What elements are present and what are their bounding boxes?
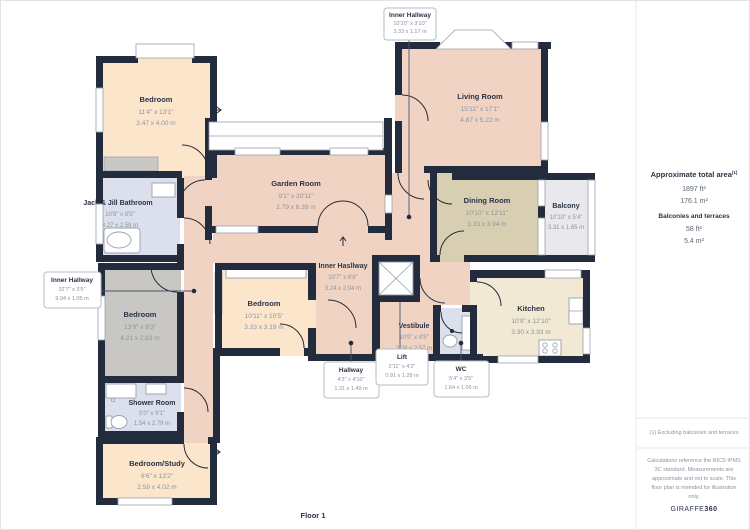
label-bedroom-center: Bedroom 10'11" x 10'5" 3.33 x 3.19 m xyxy=(244,299,284,331)
balcony-railing xyxy=(588,180,595,255)
svg-text:9'1" x 20'11": 9'1" x 20'11" xyxy=(278,193,314,200)
floor-plan: Bedroom 11'4" x 13'1" 3.47 x 4.00 m Jack… xyxy=(0,0,750,530)
label-box-lift: Lift 2'11" x 4'2" 0.91 x 1.28 m xyxy=(376,349,428,385)
svg-text:1.54 x 2.79 m: 1.54 x 2.79 m xyxy=(134,421,170,427)
label-box-inner-hallway-left: Inner Hallway 32'7" x 3'5" 9.94 x 1.05 m xyxy=(44,272,101,308)
svg-text:3.30 x 3.93 m: 3.30 x 3.93 m xyxy=(511,329,550,336)
window xyxy=(96,204,103,244)
vanity-icon xyxy=(152,183,175,197)
window xyxy=(545,270,581,278)
svg-text:5'0" x 9'1": 5'0" x 9'1" xyxy=(139,411,165,417)
svg-text:Inner Hasllway: Inner Hasllway xyxy=(318,263,367,270)
svg-text:10'11" x 10'5": 10'11" x 10'5" xyxy=(245,313,284,320)
floor-label: Floor 1 xyxy=(300,511,325,520)
svg-text:10'10" x 12'11": 10'10" x 12'11" xyxy=(466,210,509,217)
shower-tray-icon xyxy=(106,384,136,398)
svg-text:10'9" x 8'5": 10'9" x 8'5" xyxy=(399,335,429,341)
window xyxy=(235,148,280,155)
living-bay-window xyxy=(436,30,511,49)
svg-text:3.24 x 2.04 m: 3.24 x 2.04 m xyxy=(325,286,361,292)
svg-text:3.33 x 3.94 m: 3.33 x 3.94 m xyxy=(467,221,506,228)
window xyxy=(330,148,368,155)
window xyxy=(512,42,538,49)
label-dining-room: Dining Room 10'10" x 12'11" 3.33 x 3.94 … xyxy=(464,196,511,228)
svg-text:0.91 x 1.28 m: 0.91 x 1.28 m xyxy=(385,373,419,379)
corridor-left-lower xyxy=(184,240,213,443)
label-box-inner-hallway-top: Inner Hallway 10'10" x 3'10" 3.33 x 1.17… xyxy=(384,8,436,40)
svg-text:15'11" x 17'1": 15'11" x 17'1" xyxy=(461,106,500,113)
svg-text:Bedroom: Bedroom xyxy=(248,299,281,308)
svg-text:1.31 x 1.49 m: 1.31 x 1.49 m xyxy=(334,386,368,392)
svg-text:13'9" x 9'3": 13'9" x 9'3" xyxy=(124,324,157,331)
inner-hallway-top-strip xyxy=(392,173,430,240)
svg-text:11'4" x 13'1": 11'4" x 13'1" xyxy=(138,109,174,116)
balcony-ft: 58 ft² xyxy=(686,226,703,233)
svg-text:4.21 x 2.83 m: 4.21 x 2.83 m xyxy=(120,335,159,342)
label-living-room: Living Room 15'11" x 17'1" 4.87 x 5.22 m xyxy=(457,92,503,124)
lift-shaft xyxy=(379,262,413,295)
room-bedroom-study xyxy=(99,439,215,503)
label-box-hallway: Hallway 4'3" x 4'10" 1.31 x 1.49 m xyxy=(324,362,379,398)
wardrobe-icon xyxy=(104,157,158,171)
svg-text:only.: only. xyxy=(688,494,700,500)
svg-text:Garden Room: Garden Room xyxy=(271,179,321,188)
svg-text:3.33 x 1.17 m: 3.33 x 1.17 m xyxy=(393,29,427,35)
room-bedroom-left xyxy=(101,266,181,380)
vestibule-upper xyxy=(433,262,470,305)
balcony-m: 5.4 m² xyxy=(684,238,705,245)
window xyxy=(541,122,548,160)
svg-text:8'6" x 13'2": 8'6" x 13'2" xyxy=(141,473,174,480)
window xyxy=(96,88,103,132)
bay-window xyxy=(136,44,194,58)
stove-icon xyxy=(539,340,561,356)
basin-icon xyxy=(146,384,166,394)
svg-text:3.27 x 2.58 m: 3.27 x 2.58 m xyxy=(102,223,138,229)
wc-toilet-icon xyxy=(443,335,457,347)
svg-text:Jack & Jill Bathroom: Jack & Jill Bathroom xyxy=(83,200,152,207)
svg-text:Shower Room: Shower Room xyxy=(128,400,175,407)
window xyxy=(583,328,590,354)
svg-text:Kitchen: Kitchen xyxy=(517,304,545,313)
svg-text:3C standard. Measurements are: 3C standard. Measurements are xyxy=(655,467,734,473)
bathtub-basin-icon xyxy=(107,232,131,248)
svg-text:2.59 x 4.02 m: 2.59 x 4.02 m xyxy=(137,484,176,491)
svg-text:1.64 x 1.06 m: 1.64 x 1.06 m xyxy=(444,385,478,391)
svg-text:5'4" x 3'5": 5'4" x 3'5" xyxy=(449,376,473,382)
svg-text:floor plan is intended for ill: floor plan is intended for illustration xyxy=(652,485,737,491)
window xyxy=(538,218,545,255)
svg-text:10'10" x 5'4": 10'10" x 5'4" xyxy=(550,215,583,221)
window xyxy=(385,195,392,213)
room-dining-room xyxy=(430,173,545,262)
label-balcony: Balcony 10'10" x 5'4" 3.31 x 1.65 m xyxy=(548,203,584,231)
svg-text:10'9" x 12'10": 10'9" x 12'10" xyxy=(511,318,551,325)
svg-text:Hallway: Hallway xyxy=(339,367,364,374)
svg-text:Inner Hallway: Inner Hallway xyxy=(51,277,93,284)
window xyxy=(216,226,258,233)
total-area-ft: 1897 ft² xyxy=(682,186,706,193)
giraffe360-logo: GIRAFFE360 xyxy=(670,506,717,513)
window xyxy=(498,356,538,363)
label-vestibule: Vestibule 10'9" x 8'5" 3.28 x 2.57 m xyxy=(396,323,432,352)
svg-text:Balcony: Balcony xyxy=(552,203,579,210)
corridor-by-lift xyxy=(392,240,433,255)
label-box-wc: WC 5'4" x 3'5" 1.64 x 1.06 m xyxy=(434,361,489,397)
svg-text:Dining Room: Dining Room xyxy=(464,196,511,205)
svg-text:3.47 x 4.00 m: 3.47 x 4.00 m xyxy=(136,120,175,127)
svg-text:10'10" x 3'10": 10'10" x 3'10" xyxy=(393,21,426,27)
svg-text:Living Room: Living Room xyxy=(457,92,503,101)
window xyxy=(538,180,545,206)
svg-text:WC: WC xyxy=(456,366,467,373)
label-bedroom-top-left: Bedroom 11'4" x 13'1" 3.47 x 4.00 m xyxy=(136,95,175,127)
svg-text:2'11" x 4'2": 2'11" x 4'2" xyxy=(389,364,416,370)
svg-text:Inner Hallway: Inner Hallway xyxy=(389,12,431,19)
svg-text:Calculations reference the RIC: Calculations reference the RICS IPMS xyxy=(647,458,741,464)
label-bedroom-left: Bedroom 13'9" x 9'3" 4.21 x 2.83 m xyxy=(120,310,159,342)
svg-text:9.94 x 1.05 m: 9.94 x 1.05 m xyxy=(55,296,89,302)
corridor-left-upper xyxy=(184,176,207,242)
svg-text:4.87 x 5.22 m: 4.87 x 5.22 m xyxy=(460,117,499,124)
footnote: (1) Excluding balconies and terraces xyxy=(650,430,739,436)
svg-text:Vestibule: Vestibule xyxy=(399,323,430,330)
svg-text:approximate and not to scale.: approximate and not to scale. This xyxy=(652,476,736,482)
svg-text:Bedroom/Study: Bedroom/Study xyxy=(129,459,186,468)
room-hallway xyxy=(316,302,372,356)
svg-text:Bedroom: Bedroom xyxy=(124,310,157,319)
svg-text:4'3" x 4'10": 4'3" x 4'10" xyxy=(337,377,364,383)
room-garden-room xyxy=(205,148,392,233)
summary-panel: Approximate total area(1) 1897 ft² 176.1… xyxy=(636,1,749,529)
floor-plan-page: Bedroom 11'4" x 13'1" 3.47 x 4.00 m Jack… xyxy=(0,0,750,530)
svg-text:3.31 x 1.65 m: 3.31 x 1.65 m xyxy=(548,225,584,231)
svg-text:10'7" x 6'8": 10'7" x 6'8" xyxy=(328,275,358,281)
total-area-heading: Approximate total area(1) xyxy=(651,170,738,179)
svg-text:3.33 x 3.19 m: 3.33 x 3.19 m xyxy=(244,324,283,331)
disclaimer: Calculations reference the RICS IPMS 3C … xyxy=(647,458,741,500)
toilet-icon xyxy=(111,416,127,429)
balconies-heading: Balconies and terraces xyxy=(658,213,730,220)
svg-text:32'7" x 3'5": 32'7" x 3'5" xyxy=(58,287,85,293)
window xyxy=(118,498,172,505)
total-area-m: 176.1 m² xyxy=(680,198,708,205)
svg-text:Lift: Lift xyxy=(397,354,408,361)
svg-text:10'8" x 8'5": 10'8" x 8'5" xyxy=(105,212,135,218)
svg-text:2.79 x 6.39 m: 2.79 x 6.39 m xyxy=(276,204,315,211)
svg-text:Bedroom: Bedroom xyxy=(140,95,173,104)
